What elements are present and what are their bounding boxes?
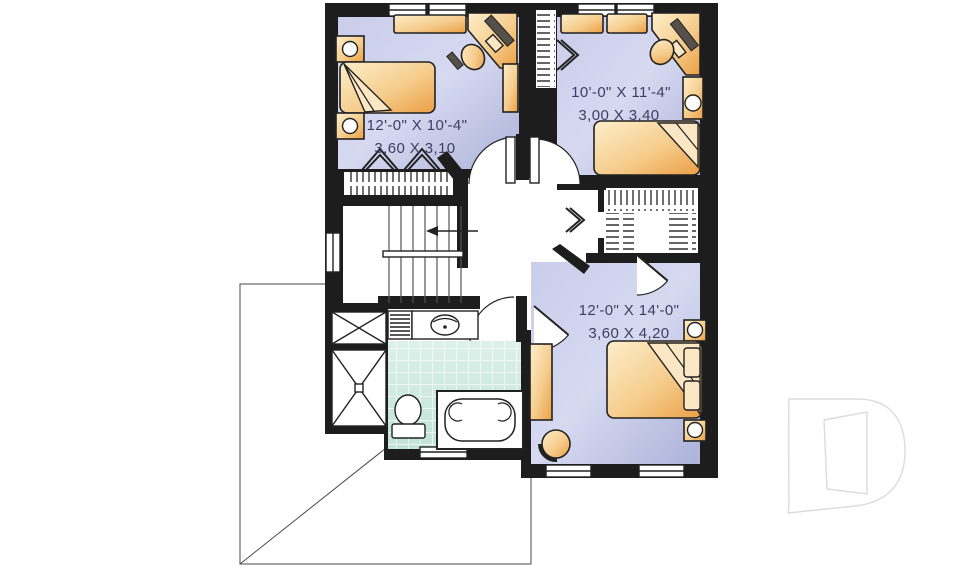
linen-closet-large (332, 350, 386, 426)
sink-icon (431, 315, 459, 335)
floor-plan-page: 12'-0" X 10'-4" 3,60 X 3,10 10'-0" X 11'… (0, 0, 960, 569)
window-icon (326, 233, 340, 272)
lamp-icon (685, 95, 701, 111)
linen-closet-small (332, 312, 386, 344)
d-logo-watermark-icon (788, 399, 905, 513)
shelf-icon (503, 64, 518, 112)
stair-railing (383, 251, 463, 257)
window-icon (546, 465, 591, 477)
shelf-icon (607, 14, 647, 33)
door-leaf-icon (506, 137, 515, 183)
dimension-label-imperial: 12'-0" X 10'-4" (367, 117, 468, 134)
closet-bottom-right-bedroom (604, 188, 698, 253)
lamp-icon (343, 119, 358, 134)
chair-icon (542, 430, 570, 458)
dimension-label-imperial: 12'-0" X 14'-0" (579, 302, 680, 319)
lamp-icon (343, 42, 358, 57)
dimension-label-metric: 3,60 X 4,20 (588, 325, 669, 342)
floor-plan-drawing: 12'-0" X 10'-4" 3,60 X 3,10 10'-0" X 11'… (0, 0, 960, 569)
closet-top-left-bedroom (344, 172, 453, 195)
lamp-icon (688, 423, 703, 438)
bathtub-icon (437, 391, 523, 449)
dresser-icon (530, 344, 552, 420)
closet-top-right-bedroom (536, 10, 556, 88)
pillow-icon (684, 381, 700, 410)
pillow-icon (684, 348, 700, 377)
shelf-icon (561, 14, 603, 33)
dimension-label-imperial: 10'-0" X 11'-4" (571, 84, 671, 101)
dimension-label-metric: 3,60 X 3,10 (374, 140, 455, 157)
dimension-label-metric: 3,00 X 3,40 (578, 107, 659, 124)
dresser-icon (394, 15, 466, 33)
window-icon (639, 465, 684, 477)
door-leaf-icon (530, 137, 539, 183)
lamp-icon (688, 323, 703, 338)
shelf-stripes-icon (388, 311, 412, 339)
